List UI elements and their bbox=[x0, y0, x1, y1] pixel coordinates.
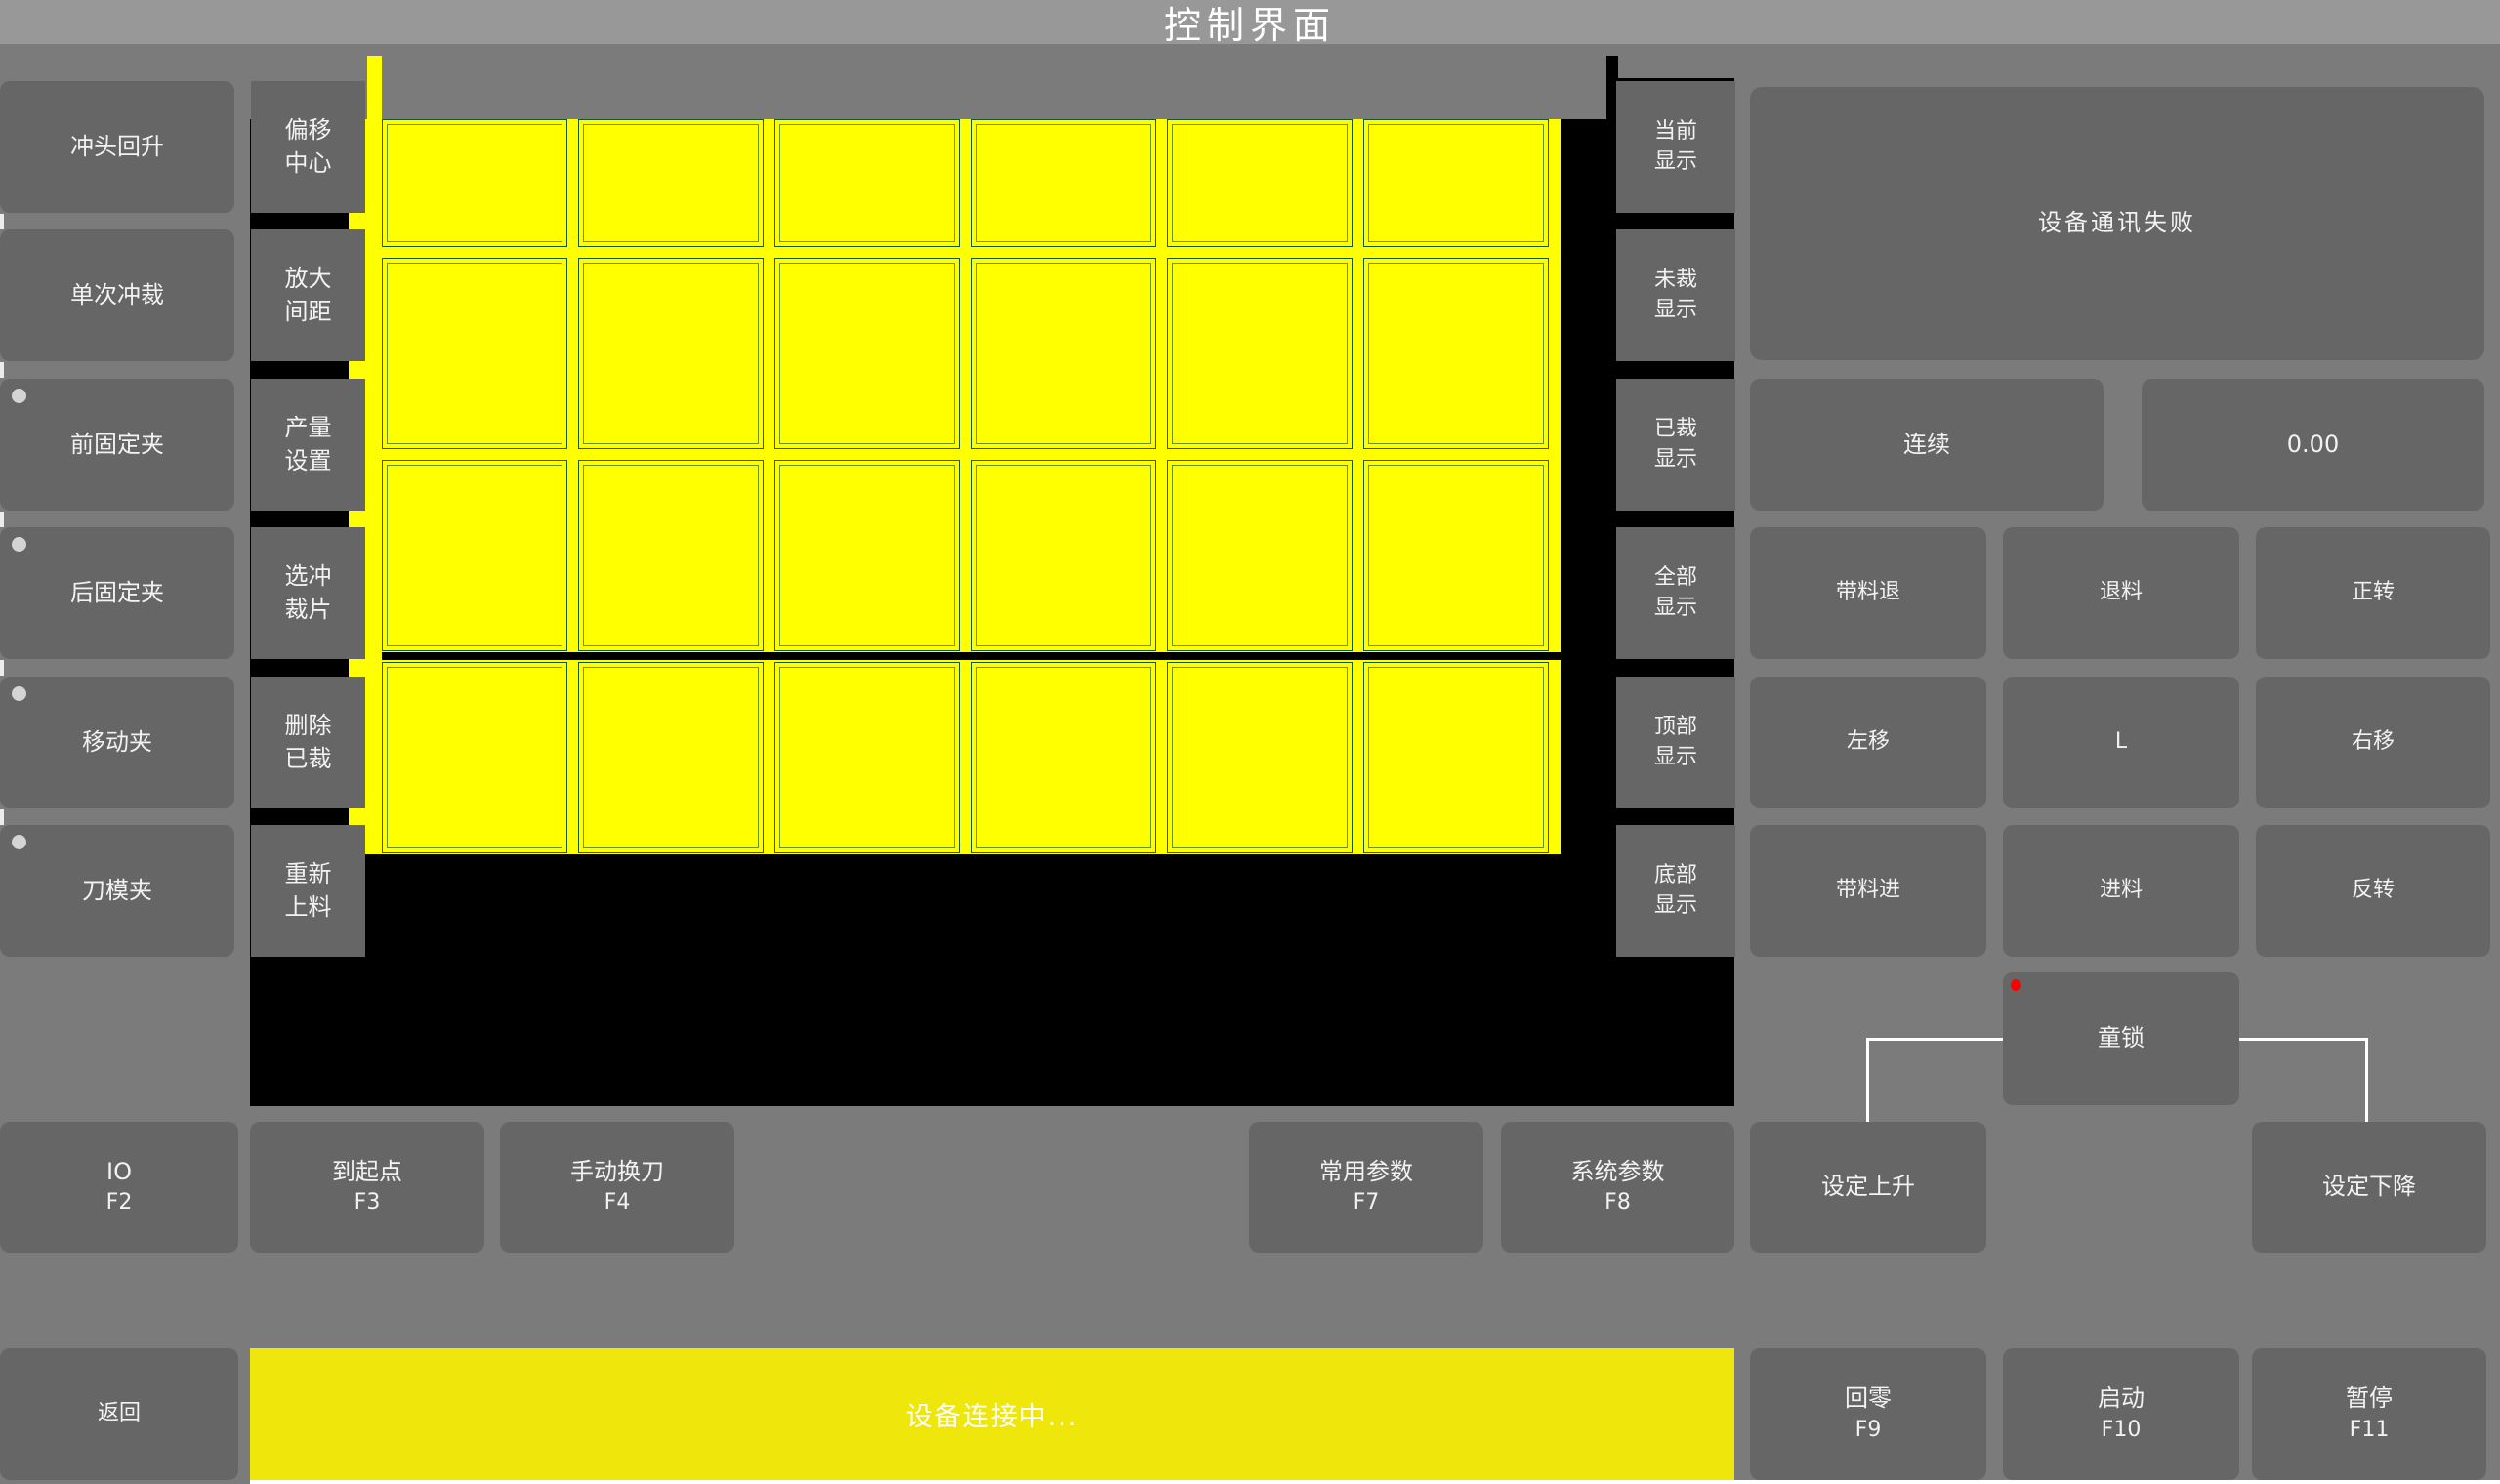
cut-piece[interactable] bbox=[774, 119, 960, 247]
pause-button[interactable]: 暂停 F11 bbox=[2252, 1348, 2486, 1480]
left-button-4[interactable]: 后固定夹 bbox=[0, 527, 234, 659]
strip-forward-button[interactable]: 带料进 bbox=[1750, 825, 1986, 957]
go-origin-button[interactable]: 到起点 F3 bbox=[250, 1122, 484, 1253]
feed-label: 进料 bbox=[2100, 876, 2143, 906]
tool-button-line1: 偏移 bbox=[285, 114, 332, 147]
left-button-label: 后固定夹 bbox=[70, 577, 164, 610]
pause-key: F11 bbox=[2350, 1416, 2390, 1446]
left-button-6[interactable]: 刀模夹 bbox=[0, 825, 234, 957]
indicator-dot bbox=[12, 389, 26, 403]
connection-status-bar: 设备连接中... bbox=[250, 1348, 1734, 1480]
display-button-line1: 底部 bbox=[1654, 861, 1697, 891]
display-button-line1: 当前 bbox=[1654, 117, 1697, 147]
start-button[interactable]: 启动 F10 bbox=[2003, 1348, 2239, 1480]
control-screen: 控制界面 设备通讯失败 连续 0.00 童锁 IO F2 到起点 F3 手动换刀… bbox=[0, 0, 2500, 1484]
cut-piece[interactable] bbox=[382, 460, 567, 651]
strip-forward-label: 带料进 bbox=[1836, 876, 1900, 906]
bracket-line-left bbox=[1866, 1038, 1869, 1122]
start-key: F10 bbox=[2102, 1416, 2142, 1446]
left-button-label: 单次冲裁 bbox=[70, 279, 164, 312]
left-edge-tab-4 bbox=[0, 660, 4, 676]
display-button-line2: 显示 bbox=[1654, 594, 1697, 624]
cut-piece[interactable] bbox=[774, 258, 960, 449]
cut-piece[interactable] bbox=[1363, 258, 1549, 449]
display-button-line2: 显示 bbox=[1654, 296, 1697, 326]
left-button-3[interactable]: 前固定夹 bbox=[0, 379, 234, 511]
manual-tool-change-label: 手动换刀 bbox=[570, 1156, 664, 1189]
display-button-line1: 未裁 bbox=[1654, 266, 1697, 296]
value-text: 0.00 bbox=[2287, 429, 2339, 462]
page-title: 控制界面 bbox=[1164, 0, 1336, 49]
strip-back-label: 带料退 bbox=[1836, 578, 1900, 608]
left-edge-tab-5 bbox=[0, 809, 4, 825]
common-params-button[interactable]: 常用参数 F7 bbox=[1249, 1122, 1483, 1253]
cut-piece[interactable] bbox=[971, 258, 1156, 449]
back-button[interactable]: 返回 bbox=[0, 1348, 238, 1480]
manual-tool-change-key: F4 bbox=[604, 1188, 631, 1218]
back-label: 返回 bbox=[98, 1399, 141, 1429]
forward-rotate-label: 正转 bbox=[2352, 578, 2395, 608]
tool-button-line2: 上料 bbox=[285, 891, 332, 925]
feed-button[interactable]: 进料 bbox=[2003, 825, 2239, 957]
reverse-rotate-button[interactable]: 反转 bbox=[2256, 825, 2490, 957]
cut-piece[interactable] bbox=[971, 662, 1156, 853]
connection-status-text: 设备连接中... bbox=[906, 1395, 1079, 1433]
move-left-label: 左移 bbox=[1847, 727, 1890, 758]
display-button-line1: 已裁 bbox=[1654, 415, 1697, 445]
system-params-label: 系统参数 bbox=[1571, 1156, 1665, 1189]
cut-piece[interactable] bbox=[1363, 119, 1549, 247]
l-button-label: L bbox=[2115, 727, 2127, 758]
move-left-button[interactable]: 左移 bbox=[1750, 677, 1986, 808]
tool-button-line2: 设置 bbox=[285, 445, 332, 478]
display-button-line2: 显示 bbox=[1654, 743, 1697, 773]
display-button-2[interactable]: 未裁显示 bbox=[1616, 229, 1735, 361]
value-display[interactable]: 0.00 bbox=[2142, 379, 2484, 511]
tool-button-line2: 已裁 bbox=[285, 743, 332, 776]
indicator-dot bbox=[12, 835, 26, 849]
left-button-label: 前固定夹 bbox=[70, 429, 164, 462]
bracket-line-right bbox=[2365, 1038, 2368, 1122]
display-button-5[interactable]: 顶部显示 bbox=[1616, 677, 1735, 808]
display-button-3[interactable]: 已裁显示 bbox=[1616, 379, 1735, 511]
home-zero-key: F9 bbox=[1855, 1416, 1882, 1446]
go-origin-key: F3 bbox=[354, 1188, 381, 1218]
cut-piece[interactable] bbox=[971, 460, 1156, 651]
indicator-dot bbox=[12, 537, 26, 552]
left-button-1[interactable]: 冲头回升 bbox=[0, 81, 234, 213]
tool-button-line1: 产量 bbox=[285, 412, 332, 445]
move-right-label: 右移 bbox=[2352, 727, 2395, 758]
cut-piece[interactable] bbox=[382, 119, 567, 247]
l-button-button[interactable]: L bbox=[2003, 677, 2239, 808]
unload-button[interactable]: 退料 bbox=[2003, 527, 2239, 659]
left-button-label: 刀模夹 bbox=[82, 875, 152, 908]
cut-piece[interactable] bbox=[1167, 258, 1353, 449]
tool-button-1[interactable]: 偏移中心 bbox=[251, 81, 365, 213]
tool-button-line1: 选冲 bbox=[285, 560, 332, 594]
left-edge-tab-2 bbox=[0, 362, 4, 378]
set-rise-button[interactable]: 设定上升 bbox=[1750, 1122, 1986, 1253]
left-button-2[interactable]: 单次冲裁 bbox=[0, 229, 234, 361]
left-edge-tab-3 bbox=[0, 512, 4, 527]
tool-button-line1: 重新 bbox=[285, 858, 332, 891]
go-origin-label: 到起点 bbox=[332, 1156, 402, 1189]
cut-piece[interactable] bbox=[382, 662, 567, 853]
tool-button-line2: 中心 bbox=[285, 147, 332, 181]
tool-button-4[interactable]: 选冲裁片 bbox=[251, 527, 365, 659]
pause-label: 暂停 bbox=[2346, 1382, 2393, 1416]
tool-button-5[interactable]: 删除已裁 bbox=[251, 677, 365, 808]
tool-button-line1: 删除 bbox=[285, 710, 332, 743]
material-sheet bbox=[382, 119, 1561, 854]
cut-piece[interactable] bbox=[1167, 119, 1353, 247]
tool-button-line1: 放大 bbox=[285, 263, 332, 296]
set-lower-button[interactable]: 设定下降 bbox=[2252, 1122, 2486, 1253]
display-button-4[interactable]: 全部显示 bbox=[1616, 527, 1735, 659]
cut-piece[interactable] bbox=[1363, 662, 1549, 853]
cut-piece[interactable] bbox=[578, 119, 764, 247]
unload-label: 退料 bbox=[2100, 578, 2143, 608]
common-params-label: 常用参数 bbox=[1319, 1156, 1413, 1189]
io-key: F2 bbox=[106, 1188, 133, 1218]
display-button-line1: 顶部 bbox=[1654, 713, 1697, 743]
io-button[interactable]: IO F2 bbox=[0, 1122, 238, 1253]
system-params-key: F8 bbox=[1604, 1188, 1631, 1218]
cut-piece[interactable] bbox=[1363, 460, 1549, 651]
indicator-dot bbox=[12, 686, 26, 701]
strip-back-button[interactable]: 带料退 bbox=[1750, 527, 1986, 659]
left-button-5[interactable]: 移动夹 bbox=[0, 677, 234, 808]
forward-rotate-button[interactable]: 正转 bbox=[2256, 527, 2490, 659]
cut-piece[interactable] bbox=[578, 258, 764, 449]
sheet-top-tab bbox=[367, 56, 382, 120]
cut-piece[interactable] bbox=[774, 662, 960, 853]
cut-piece[interactable] bbox=[578, 460, 764, 651]
title-bar: 控制界面 bbox=[0, 0, 2500, 44]
continuous-button[interactable]: 连续 bbox=[1750, 379, 2104, 511]
set-rise-label: 设定上升 bbox=[1821, 1171, 1915, 1204]
tool-button-2[interactable]: 放大间距 bbox=[251, 229, 365, 361]
cut-piece[interactable] bbox=[382, 258, 567, 449]
home-zero-button[interactable]: 回零 F9 bbox=[1750, 1348, 1986, 1480]
manual-tool-change-button[interactable]: 手动换刀 F4 bbox=[500, 1122, 734, 1253]
cut-piece[interactable] bbox=[971, 119, 1156, 247]
tool-button-line2: 间距 bbox=[285, 296, 332, 329]
child-lock-button[interactable]: 童锁 bbox=[2003, 972, 2239, 1105]
device-message-box: 设备通讯失败 bbox=[1750, 87, 2484, 360]
start-label: 启动 bbox=[2098, 1382, 2145, 1416]
cut-line bbox=[382, 652, 1561, 660]
tool-button-line2: 裁片 bbox=[285, 594, 332, 627]
red-indicator-dot bbox=[2011, 979, 2021, 991]
set-lower-label: 设定下降 bbox=[2322, 1171, 2416, 1204]
cut-piece[interactable] bbox=[774, 460, 960, 651]
reverse-rotate-label: 反转 bbox=[2352, 876, 2395, 906]
display-button-line2: 显示 bbox=[1654, 147, 1697, 178]
child-lock-label: 童锁 bbox=[2098, 1022, 2145, 1055]
device-message: 设备通讯失败 bbox=[2038, 207, 2196, 240]
cut-piece[interactable] bbox=[578, 662, 764, 853]
display-button-1[interactable]: 当前显示 bbox=[1616, 81, 1735, 213]
cut-piece[interactable] bbox=[1167, 662, 1353, 853]
move-right-button[interactable]: 右移 bbox=[2256, 677, 2490, 808]
io-label: IO bbox=[106, 1156, 132, 1189]
display-button-6[interactable]: 底部显示 bbox=[1616, 825, 1735, 957]
continuous-label: 连续 bbox=[1903, 429, 1950, 462]
display-button-line2: 显示 bbox=[1654, 891, 1697, 922]
system-params-button[interactable]: 系统参数 F8 bbox=[1501, 1122, 1734, 1253]
cut-piece[interactable] bbox=[1167, 460, 1353, 651]
bottom-white-strip bbox=[250, 1480, 2500, 1484]
left-button-label: 移动夹 bbox=[82, 726, 152, 760]
display-button-line2: 显示 bbox=[1654, 445, 1697, 475]
left-button-label: 冲头回升 bbox=[70, 131, 164, 164]
display-button-line1: 全部 bbox=[1654, 563, 1697, 594]
left-edge-tab-1 bbox=[0, 214, 4, 229]
common-params-key: F7 bbox=[1354, 1188, 1380, 1218]
tool-button-6[interactable]: 重新上料 bbox=[251, 825, 365, 957]
tool-button-3[interactable]: 产量设置 bbox=[251, 379, 365, 511]
home-zero-label: 回零 bbox=[1845, 1382, 1892, 1416]
